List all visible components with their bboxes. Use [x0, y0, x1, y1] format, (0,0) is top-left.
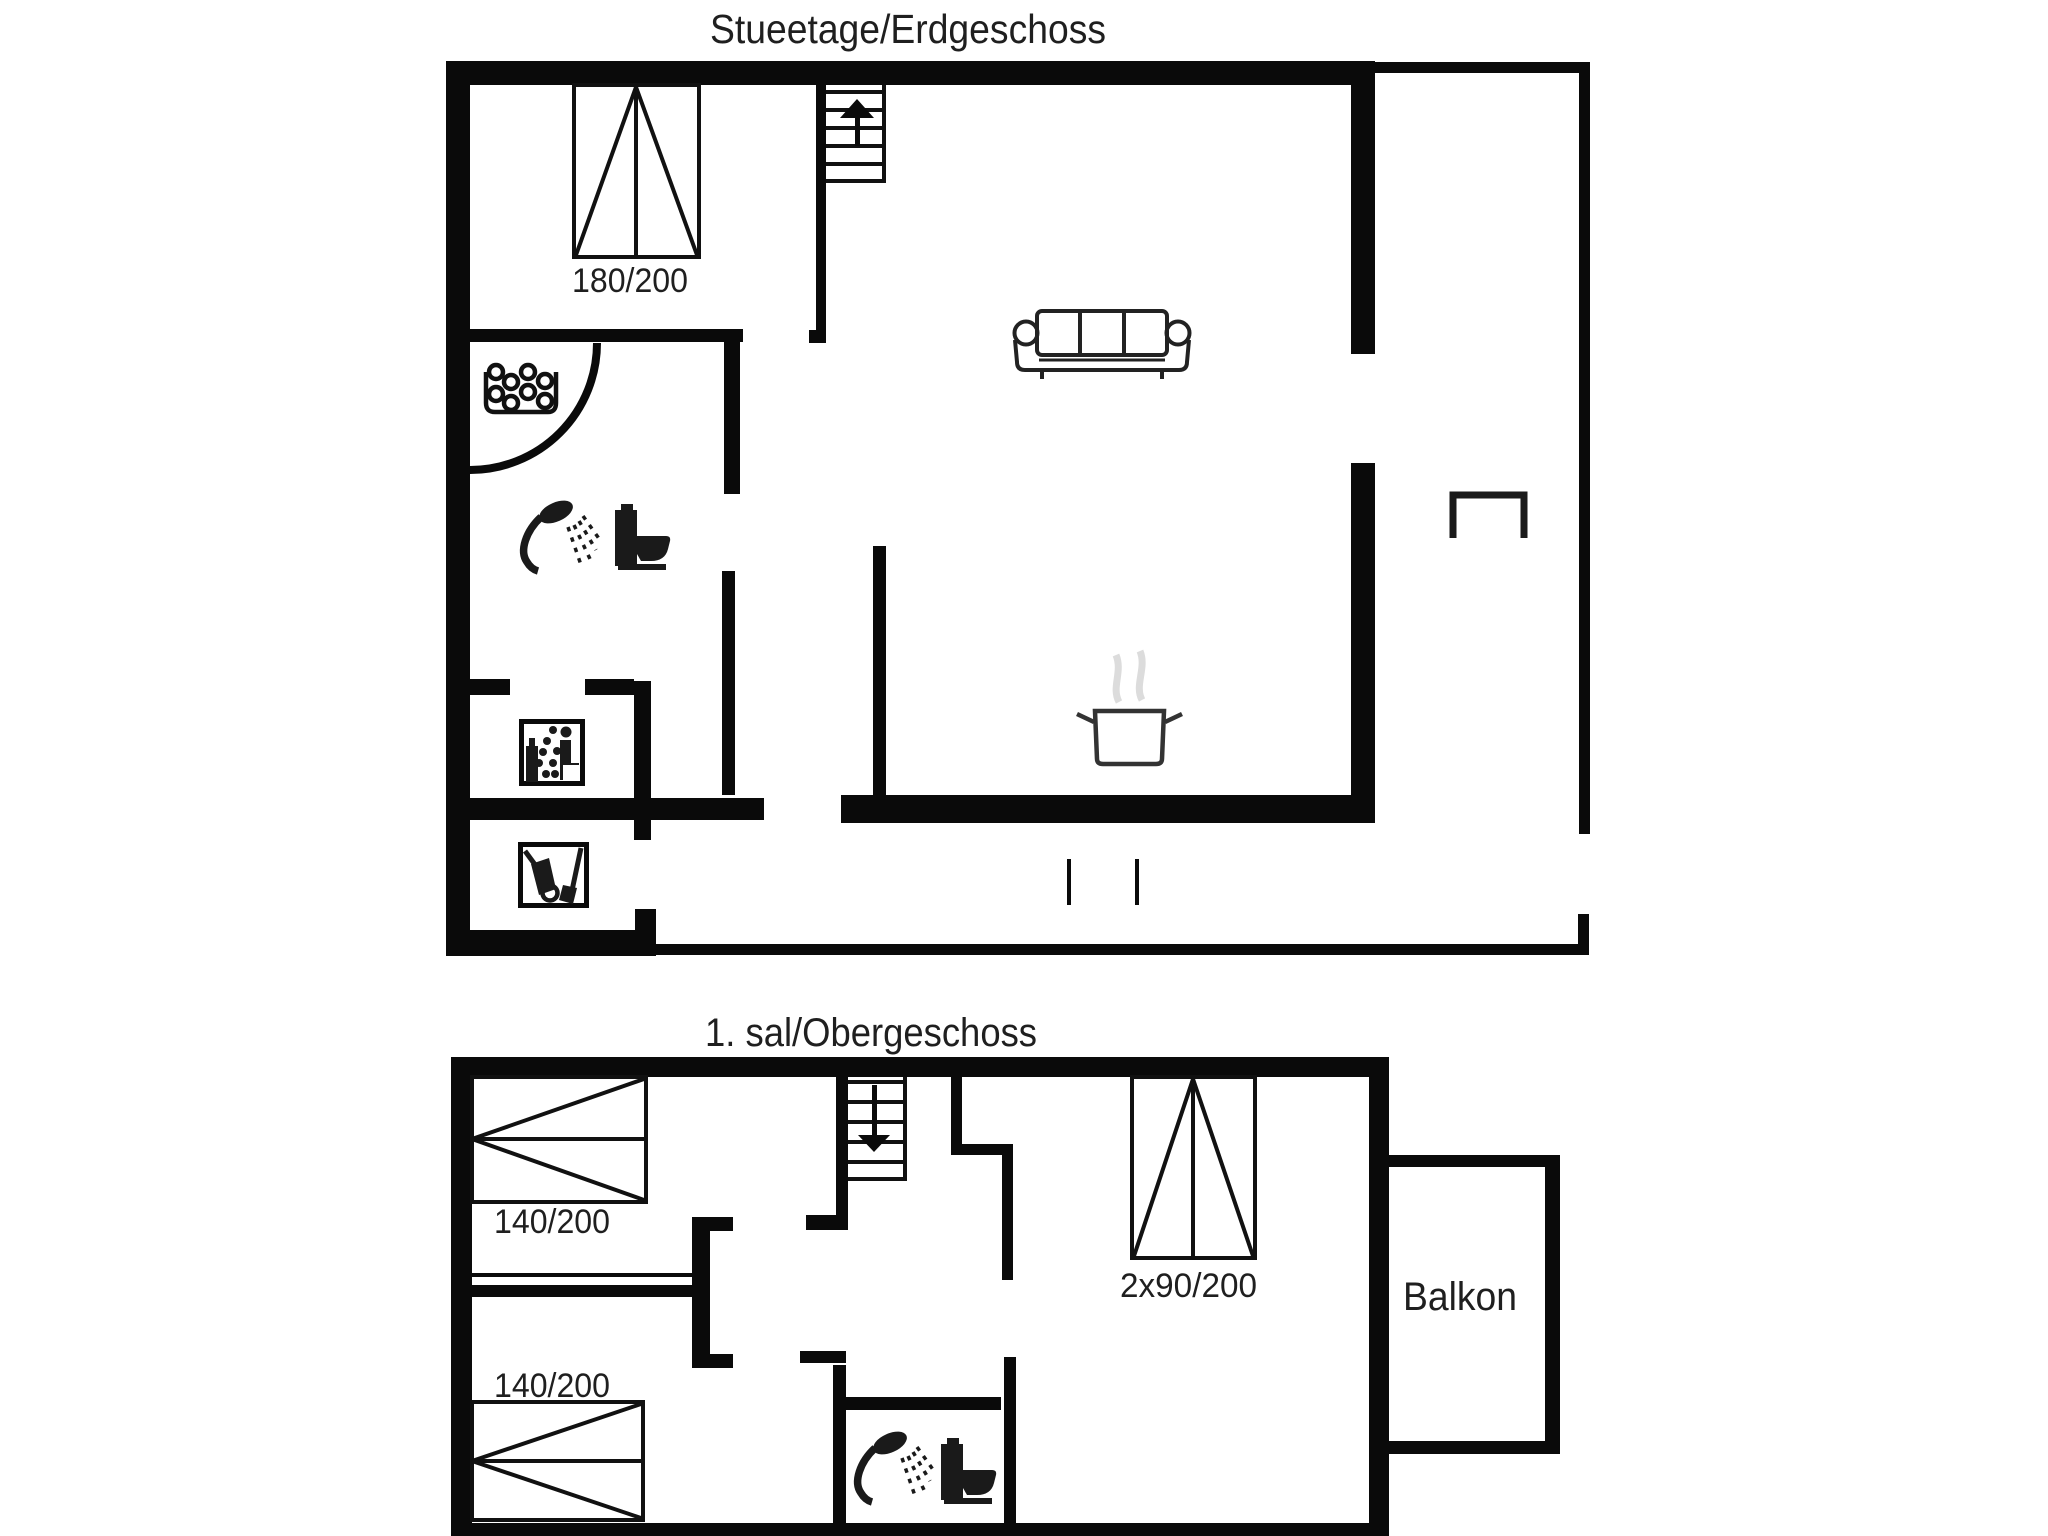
- svg-text:Balkon: Balkon: [1403, 1275, 1517, 1319]
- svg-text:140/200: 140/200: [494, 1367, 610, 1405]
- svg-text:2x90/200: 2x90/200: [1120, 1267, 1257, 1305]
- svg-text:Stueetage/Erdgeschoss: Stueetage/Erdgeschoss: [710, 6, 1106, 52]
- svg-text:1. sal/Obergeschoss: 1. sal/Obergeschoss: [705, 1011, 1037, 1055]
- svg-text:140/200: 140/200: [494, 1203, 610, 1241]
- svg-text:180/200: 180/200: [572, 262, 688, 300]
